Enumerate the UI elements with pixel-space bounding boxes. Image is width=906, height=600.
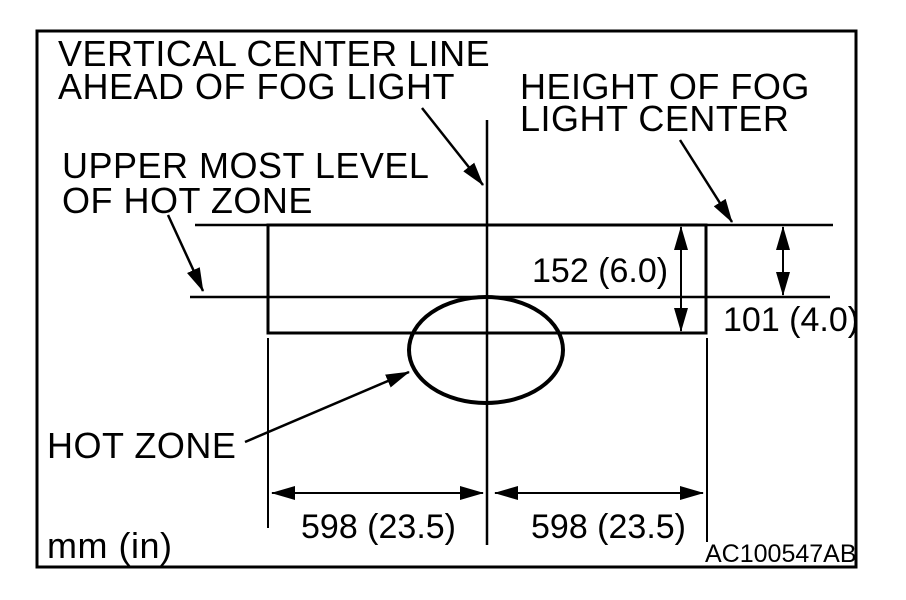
leader-height-of-fog-light: [680, 140, 732, 222]
dim-text-598-right: 598 (23.5): [531, 508, 686, 546]
diagram-svg: VERTICAL CENTER LINE AHEAD OF FOG LIGHT …: [0, 0, 906, 600]
label-units: mm (in): [47, 525, 172, 566]
label-hot-zone: HOT ZONE: [47, 425, 236, 466]
dim-text-598-left: 598 (23.5): [301, 508, 456, 546]
leader-vertical-center-line: [422, 108, 483, 185]
dim-text-152: 152 (6.0): [532, 252, 668, 290]
figure-code: AC100547AB: [705, 540, 857, 568]
leader-hot-zone: [245, 372, 409, 442]
dim-text-101: 101 (4.0): [723, 301, 859, 339]
label-upper-most-level-2: OF HOT ZONE: [62, 180, 313, 221]
fog-light-hot-zone-diagram: VERTICAL CENTER LINE AHEAD OF FOG LIGHT …: [0, 0, 906, 600]
label-vertical-center-line-2: AHEAD OF FOG LIGHT: [58, 66, 455, 107]
label-height-of-fog-light-2: LIGHT CENTER: [520, 98, 789, 139]
leader-upper-most-level: [168, 215, 203, 291]
